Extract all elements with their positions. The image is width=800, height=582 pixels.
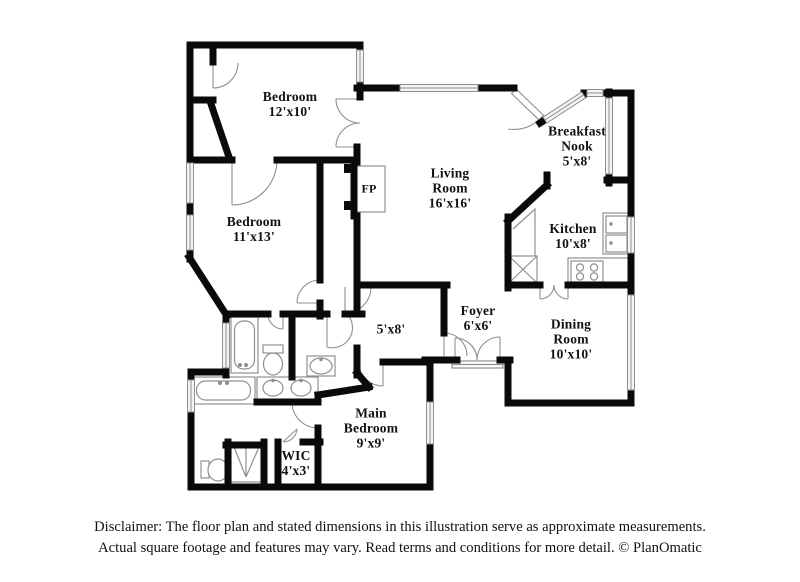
bedroom-door	[232, 160, 277, 205]
window	[543, 92, 585, 123]
vanity-door	[327, 314, 352, 348]
wic-door	[283, 429, 297, 442]
burner	[576, 273, 583, 280]
nook-door-swing	[508, 118, 541, 129]
window	[628, 295, 635, 390]
room-label-foyer: Foyer 6'x6'	[461, 303, 496, 333]
window	[587, 90, 603, 97]
room-label-wic: WIC 4'x3'	[281, 448, 310, 478]
fireplace-tab	[344, 201, 355, 210]
window	[427, 402, 434, 444]
nook-door-leaf	[512, 89, 544, 120]
room-label-breakfast-nook: Breakfast Nook 5'x8'	[548, 123, 606, 168]
toilet	[263, 345, 283, 353]
stove	[571, 261, 603, 282]
room-label-main-bedroom: Main Bedroom 9'x9'	[344, 405, 398, 450]
double-door	[336, 99, 360, 123]
floor-plan: Bedroom 12'x10' Bedroom 11'x13' Living R…	[0, 0, 800, 582]
room-label-hall: 5'x8'	[377, 321, 406, 336]
disclaimer-line-2: Actual square footage and features may v…	[0, 538, 800, 559]
window	[187, 215, 194, 250]
burner	[590, 273, 597, 280]
closet-door	[213, 63, 238, 88]
room-label-bedroom-12x10: Bedroom 12'x10'	[263, 89, 317, 119]
window	[187, 163, 194, 203]
bath-bedroom-door	[292, 402, 318, 428]
room-label-dining-room: Dining Room 10'x10'	[550, 316, 593, 361]
room-label-kitchen: Kitchen 10'x8'	[549, 221, 596, 251]
floor-plan-drawing	[0, 0, 800, 582]
kitchen-sink-basin	[606, 235, 627, 252]
window	[357, 50, 364, 82]
window	[400, 85, 478, 92]
burner	[576, 264, 583, 271]
room-label-bedroom-11x13: Bedroom 11'x13'	[227, 214, 281, 244]
kitchen-sink-basin	[606, 216, 627, 233]
window	[606, 98, 613, 174]
footer-disclaimer: Disclaimer: The floor plan and stated di…	[0, 517, 800, 559]
sink	[263, 380, 283, 396]
fireplace-tab	[344, 164, 355, 173]
window	[628, 217, 635, 253]
burner	[590, 264, 597, 271]
room-label-living-room: Living Room 16'x16'	[429, 165, 472, 210]
window	[223, 323, 230, 368]
sink	[291, 380, 311, 396]
disclaimer-line-1: Disclaimer: The floor plan and stated di…	[0, 517, 800, 538]
room-label-fireplace: FP	[361, 182, 376, 195]
double-door	[336, 123, 360, 147]
window	[188, 380, 195, 412]
